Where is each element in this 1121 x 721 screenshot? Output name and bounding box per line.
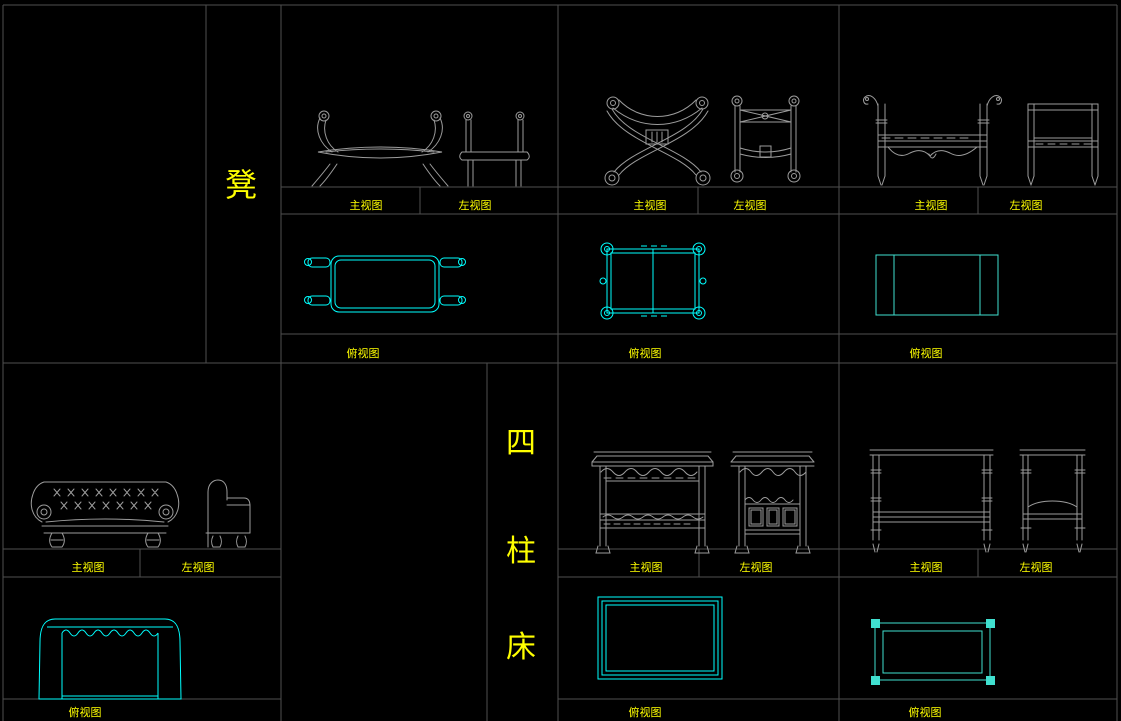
stool-2-top-view-drawing[interactable] (600, 243, 706, 319)
stool-3-left-view-drawing[interactable] (1028, 104, 1098, 185)
stool-3-front-view-drawing[interactable] (864, 96, 1002, 185)
category-bed-char-1: 四 (506, 426, 536, 461)
stool-3-left-view-label: 左视图 (1010, 198, 1043, 212)
sofa-front-view-label: 主视图 (72, 560, 105, 574)
stool-3-front-view-label: 主视图 (915, 198, 948, 212)
bed-2-top-view-drawing[interactable] (871, 619, 995, 685)
stool-1-top-view-label: 俯视图 (347, 346, 380, 360)
bed-1-front-view-label: 主视图 (630, 560, 663, 574)
grid-lines (3, 5, 1117, 721)
stool-2-front-view-label: 主视图 (634, 198, 667, 212)
stool-2-left-view-drawing[interactable] (731, 96, 800, 182)
bed-1-top-view-drawing[interactable] (598, 597, 722, 679)
sofa-left-view-drawing[interactable] (206, 480, 250, 547)
bed-2-left-view-label: 左视图 (1020, 560, 1053, 574)
cad-drawing-sheet: 凳 四 柱 床 (0, 0, 1121, 721)
stool-1-front-view-drawing[interactable] (312, 111, 448, 186)
sofa-front-view-drawing[interactable] (31, 482, 178, 547)
stool-1-front-view-label: 主视图 (350, 198, 383, 212)
stool-2-top-view-label: 俯视图 (629, 346, 662, 360)
bed-2-top-view-label: 俯视图 (909, 705, 942, 719)
bed-1-left-view-drawing[interactable] (731, 452, 814, 553)
bed-2-front-view-drawing[interactable] (870, 450, 993, 552)
stool-1-left-view-drawing[interactable] (460, 112, 530, 186)
stool-3-top-view-drawing[interactable] (876, 255, 998, 315)
bed-1-top-view-label: 俯视图 (629, 705, 662, 719)
category-stool-title: 凳 (225, 166, 257, 204)
cad-viewport[interactable]: 凳 四 柱 床 (0, 0, 1121, 721)
bed-2-left-view-drawing[interactable] (1020, 450, 1085, 552)
stool-2-left-view-label: 左视图 (734, 198, 767, 212)
stool-3-top-view-label: 俯视图 (910, 346, 943, 360)
bed-1-front-view-drawing[interactable] (592, 452, 713, 553)
stool-1-left-view-label: 左视图 (459, 198, 492, 212)
category-bed-char-2: 柱 (506, 534, 536, 569)
bed-1-left-view-label: 左视图 (740, 560, 773, 574)
category-bed-char-3: 床 (506, 630, 536, 665)
stool-2-front-view-drawing[interactable] (605, 97, 710, 185)
sofa-top-view-label: 俯视图 (69, 705, 102, 719)
stool-1-top-view-drawing[interactable] (305, 256, 466, 312)
bed-2-front-view-label: 主视图 (910, 560, 943, 574)
sofa-left-view-label: 左视图 (182, 560, 215, 574)
sofa-top-view-drawing[interactable] (39, 619, 181, 699)
